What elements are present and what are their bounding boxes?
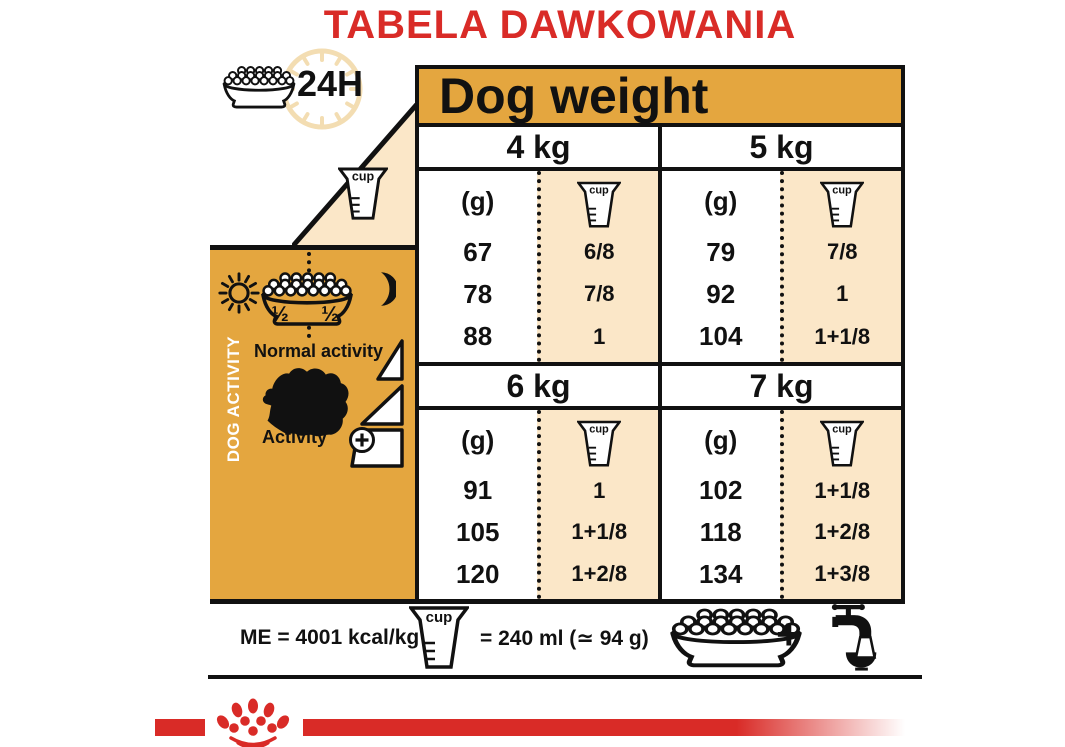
cup-icon: [338, 166, 388, 222]
grams-value: 118: [700, 517, 742, 548]
quadrant-5kg: (g) 79 92 104 7/8 1 1+1/8: [658, 171, 901, 362]
grams-value: 92: [706, 279, 735, 310]
half-portion-right: ½: [315, 303, 345, 327]
cups-value: 1+1/8: [571, 519, 627, 545]
weight-header-row-top: 4 kg 5 kg: [415, 123, 905, 171]
weight-header-4kg: 4 kg: [419, 127, 658, 167]
half-portion-left: ½: [265, 303, 295, 327]
weight-header-7kg: 7 kg: [658, 366, 901, 406]
sidebar-title: DOG ACTIVITY: [224, 334, 248, 464]
footer-notes: ME = 4001 kcal/kg = 240 ml (≃ 94 g) +: [208, 604, 922, 679]
cups-value: 7/8: [827, 239, 858, 265]
data-row-top: (g) 67 78 88 6/8 7/8 1 (g) 79 92 104 7/8: [415, 167, 905, 366]
activity-wedge-small: [378, 341, 402, 379]
cups-column: 1+1/8 1+2/8 1+3/8: [780, 410, 902, 599]
activity-label: Activity: [262, 427, 327, 448]
cups-value: 1: [593, 478, 605, 504]
faucet-water-icon: [812, 602, 878, 674]
grams-value: 134: [699, 559, 742, 590]
grams-value: 78: [463, 279, 492, 310]
cups-value: 1+2/8: [571, 561, 627, 587]
grams-column: (g) 79 92 104: [662, 171, 780, 362]
grams-column: (g) 91 105 120: [419, 410, 537, 599]
cups-value: 1+1/8: [814, 478, 870, 504]
grams-unit-label: (g): [461, 425, 494, 456]
grams-value: 88: [463, 321, 492, 352]
grams-value: 79: [706, 237, 735, 268]
hours-label: 24H: [297, 63, 363, 105]
cup-icon: [408, 606, 470, 670]
brand-stripe-right: [303, 719, 905, 736]
kibble-bowl-icon: [217, 60, 301, 116]
weight-header-6kg: 6 kg: [419, 366, 658, 406]
activity-wedge-medium: [362, 386, 402, 424]
quadrant-4kg: (g) 67 78 88 6/8 7/8 1: [419, 171, 658, 362]
grams-unit-label: (g): [461, 186, 494, 217]
grams-value: 102: [699, 475, 742, 506]
brand-stripe-left: [155, 719, 205, 736]
cup-icon: [820, 420, 864, 468]
grams-column: (g) 102 118 134: [662, 410, 780, 599]
dog-activity-sidebar: ½ ½ DOG ACTIVITY Normal activity Activit…: [210, 250, 415, 603]
cups-value: 1: [593, 324, 605, 350]
cups-value: 1: [836, 281, 848, 307]
cups-value: 7/8: [584, 281, 615, 307]
grams-value: 67: [463, 237, 492, 268]
cup-icon: [577, 181, 621, 229]
cups-column: 1 1+1/8 1+2/8: [537, 410, 659, 599]
data-row-bottom: (g) 91 105 120 1 1+1/8 1+2/8 (g) 102 118…: [415, 406, 905, 603]
table-header: Dog weight: [415, 65, 905, 127]
cups-column: 6/8 7/8 1: [537, 171, 659, 362]
table-header-label: Dog weight: [439, 67, 708, 125]
cup-icon: [820, 181, 864, 229]
grams-value: 105: [456, 517, 499, 548]
cups-value: 1+1/8: [814, 324, 870, 350]
cups-value: 1+2/8: [814, 519, 870, 545]
grams-value: 120: [456, 559, 499, 590]
cups-value: 6/8: [584, 239, 615, 265]
grams-value: 104: [699, 321, 742, 352]
dosage-label: TABELA DAWKOWANIA 24H ½ ½ DOG ACTIVITY N…: [0, 0, 1065, 747]
cups-value: 1+3/8: [814, 561, 870, 587]
cup-icon: [577, 420, 621, 468]
plus-circle-icon: [348, 426, 376, 454]
moon-icon: [368, 271, 396, 307]
crown-logo: [210, 697, 296, 747]
grams-unit-label: (g): [704, 186, 737, 217]
weight-header-row-bottom: 6 kg 7 kg: [415, 362, 905, 410]
plus-sign: +: [776, 610, 802, 660]
grams-column: (g) 67 78 88: [419, 171, 537, 362]
cup-equivalence-label: = 240 ml (≃ 94 g): [480, 626, 649, 651]
energy-label: ME = 4001 kcal/kg: [240, 626, 419, 650]
quadrant-7kg: (g) 102 118 134 1+1/8 1+2/8 1+3/8: [658, 410, 901, 599]
grams-value: 91: [463, 475, 492, 506]
cups-column: 7/8 1 1+1/8: [780, 171, 902, 362]
weight-header-5kg: 5 kg: [658, 127, 901, 167]
page-title: TABELA DAWKOWANIA: [0, 3, 1065, 48]
quadrant-6kg: (g) 91 105 120 1 1+1/8 1+2/8: [419, 410, 658, 599]
split-bowl-icon: [254, 260, 360, 340]
grams-unit-label: (g): [704, 425, 737, 456]
